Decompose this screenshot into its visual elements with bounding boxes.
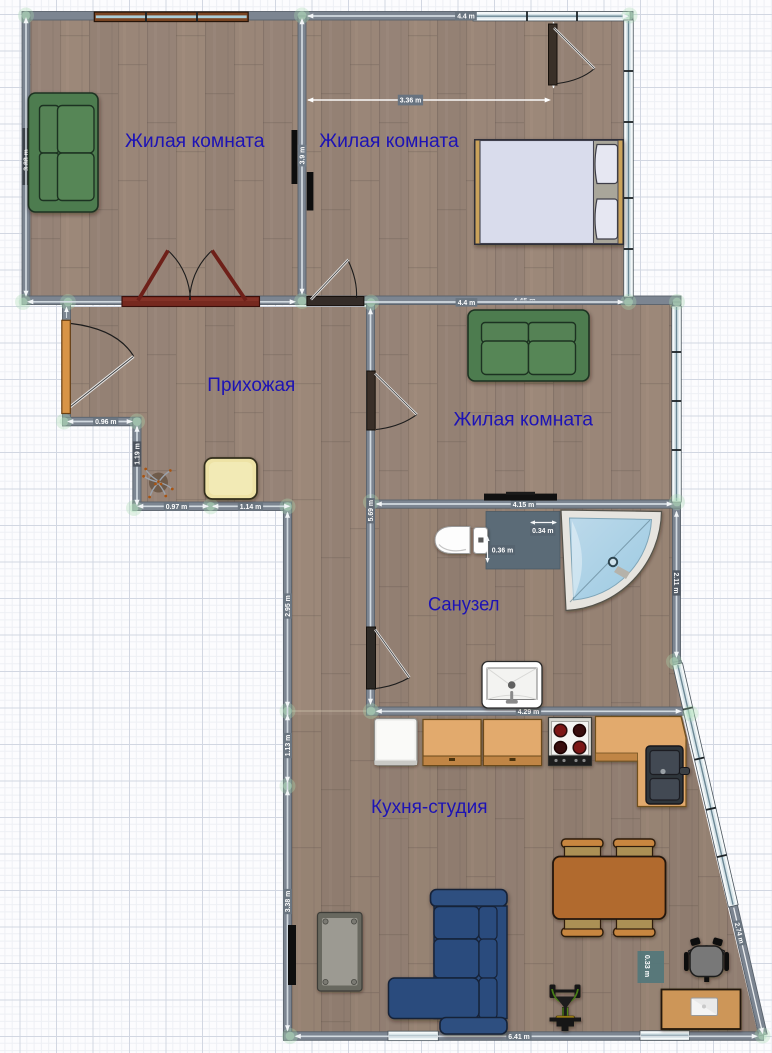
svg-text:3.9 m: 3.9 m — [300, 147, 307, 165]
svg-text:0.96 m: 0.96 m — [95, 419, 116, 426]
svg-text:0.97 m: 0.97 m — [166, 504, 187, 511]
svg-text:2.95 m: 2.95 m — [285, 595, 292, 616]
svg-text:4.15 m: 4.15 m — [513, 502, 534, 509]
svg-text:3.38 m: 3.38 m — [285, 891, 292, 912]
svg-text:6.41 m: 6.41 m — [508, 1034, 529, 1041]
svg-text:0.34 m: 0.34 m — [532, 528, 553, 535]
svg-text:2.11 m: 2.11 m — [672, 572, 679, 593]
svg-text:0.33 m: 0.33 m — [643, 955, 652, 977]
svg-text:5.69 m: 5.69 m — [368, 500, 375, 521]
svg-text:0.36 m: 0.36 m — [492, 548, 513, 555]
svg-text:Жилая комната: Жилая комната — [454, 410, 594, 431]
svg-text:3.36 m: 3.36 m — [400, 98, 421, 105]
svg-text:Жилая комната: Жилая комната — [125, 131, 265, 152]
svg-text:1.13 m: 1.13 m — [285, 735, 292, 756]
svg-text:4.4 m: 4.4 m — [458, 300, 476, 307]
svg-text:1.19 m: 1.19 m — [135, 443, 142, 464]
svg-text:Кухня-студия: Кухня-студия — [371, 797, 488, 818]
svg-text:Прихожая: Прихожая — [207, 375, 295, 396]
svg-text:Санузел: Санузел — [428, 595, 500, 616]
svg-text:1.14 m: 1.14 m — [240, 504, 261, 511]
svg-text:4.4 m: 4.4 m — [457, 14, 475, 21]
svg-text:4.29 m: 4.29 m — [518, 709, 539, 716]
svg-text:Жилая комната: Жилая комната — [319, 131, 459, 152]
